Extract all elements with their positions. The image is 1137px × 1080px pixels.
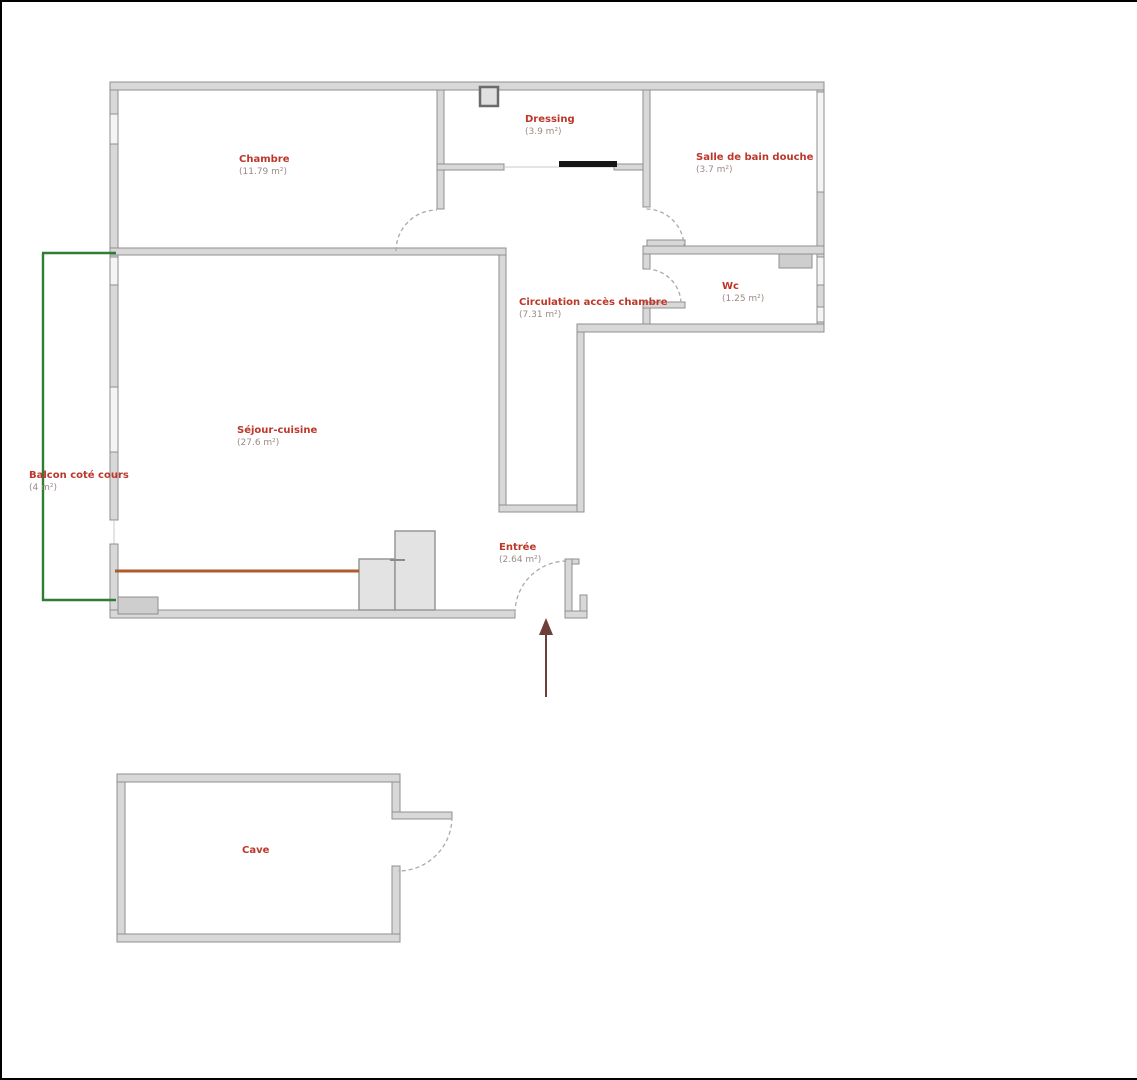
kitchen-units <box>359 531 435 610</box>
entrance-arrow <box>539 618 553 697</box>
wardrobe-symbol <box>559 161 617 167</box>
interior-walls <box>110 90 824 618</box>
exterior-walls <box>110 82 824 618</box>
chambre-door-arc <box>396 210 437 251</box>
floorplan-canvas: Chambre (11.79 m²) Dressing (3.9 m²) Sal… <box>0 0 1137 1080</box>
duct-symbol <box>480 87 498 106</box>
balcony-outline <box>42 253 116 601</box>
floorplan-drawing <box>2 2 1137 1080</box>
entrance-door-arc <box>515 561 567 613</box>
wc-door-arc <box>647 269 682 304</box>
cave-walls <box>117 774 452 942</box>
wc-radiator <box>779 254 812 268</box>
sejour-radiator <box>118 597 158 614</box>
cave-door-arc <box>398 817 452 871</box>
